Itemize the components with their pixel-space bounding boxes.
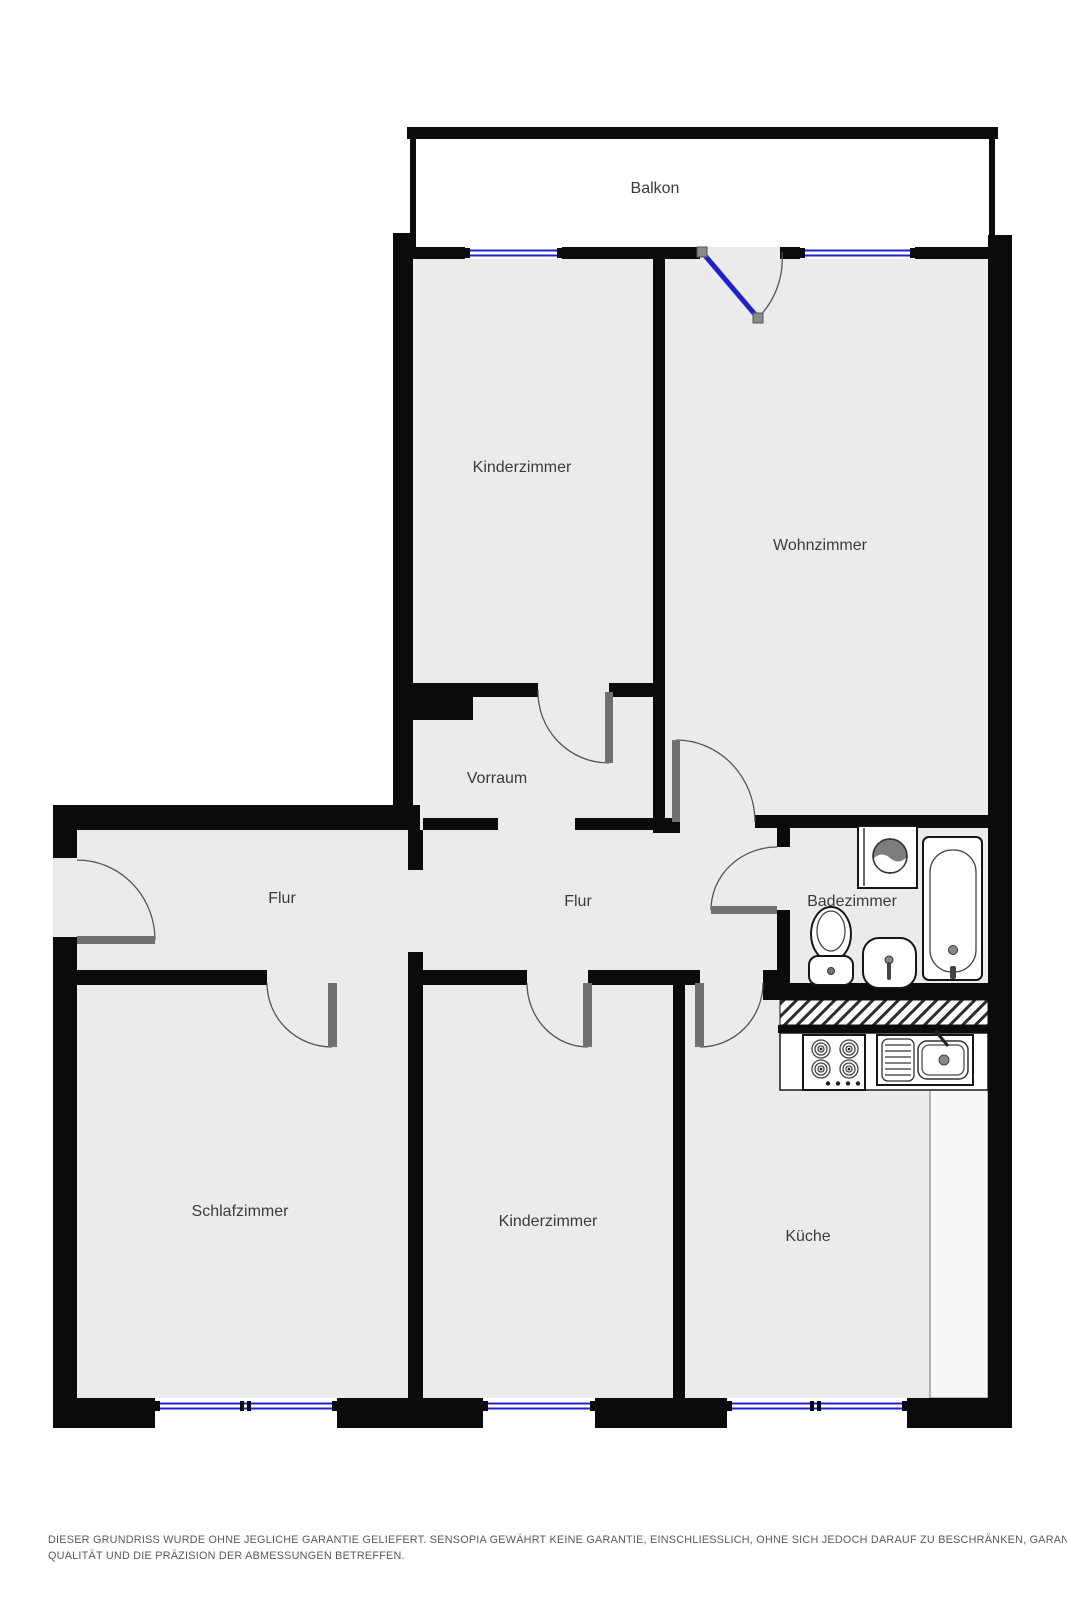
- room-floor-schlafzimmer: [77, 985, 408, 1398]
- window-wohnzimmer: [800, 247, 915, 259]
- disclaimer-line-2: QUALITÄT UND DIE PRÄZISION DER ABMESSUNG…: [48, 1550, 405, 1562]
- balcony-floor: [416, 139, 989, 247]
- room-floor-flur: [77, 830, 777, 985]
- room-floor-kinderzimmer-bottom: [423, 985, 673, 1398]
- balcony-wall-top: [407, 127, 998, 139]
- duct-shaft-hatch: [780, 1000, 988, 1025]
- kitchen-counter-strip: [930, 1090, 988, 1398]
- window-kinderzimmer-bottom: [483, 1400, 595, 1412]
- washing-machine-icon: [858, 826, 917, 888]
- room-label-schlafzimmer: Schlafzimmer: [192, 1203, 290, 1220]
- badezimmer-doorway: [777, 847, 790, 910]
- room-label-vorraum: Vorraum: [467, 770, 527, 787]
- stove-icon: [803, 1035, 865, 1090]
- exterior-wall-right: [988, 235, 1012, 1428]
- window-kueche: [727, 1400, 907, 1412]
- room-label-flur-center: Flur: [564, 893, 592, 910]
- floorplan-page: Balkon Kinderzimmer Wohnzimmer Vorraum F…: [0, 0, 1067, 1600]
- balcony-wall-right: [989, 139, 995, 247]
- disclaimer-line-1: DIESER GRUNDRISS WURDE OHNE JEGLICHE GAR…: [48, 1534, 1067, 1546]
- entrance-doorway: [53, 858, 77, 937]
- window-kinderzimmer-top: [465, 247, 562, 259]
- room-label-wohnzimmer: Wohnzimmer: [773, 537, 868, 554]
- room-label-balkon: Balkon: [631, 180, 680, 197]
- exterior-wall-left: [53, 937, 77, 1428]
- room-label-kinderzimmer-bottom: Kinderzimmer: [499, 1213, 598, 1230]
- kitchen-sink-icon: [877, 1030, 973, 1085]
- bathtub-icon: [923, 837, 982, 980]
- balcony-door-threshold: [700, 247, 782, 259]
- floorplan-drawing: Balkon Kinderzimmer Wohnzimmer Vorraum F…: [0, 0, 1067, 1600]
- room-floor-kinderzimmer-top: [413, 259, 653, 830]
- room-label-flur-left: Flur: [268, 890, 296, 907]
- room-label-badezimmer: Badezimmer: [807, 893, 897, 910]
- room-label-kueche: Küche: [785, 1228, 830, 1245]
- bathroom-sink-icon: [863, 938, 916, 988]
- window-schlafzimmer: [155, 1400, 337, 1412]
- room-label-kinderzimmer-top: Kinderzimmer: [473, 459, 572, 476]
- toilet-icon: [809, 907, 853, 985]
- balcony-wall-left: [410, 139, 416, 247]
- exterior-wall-upper-left: [393, 233, 413, 830]
